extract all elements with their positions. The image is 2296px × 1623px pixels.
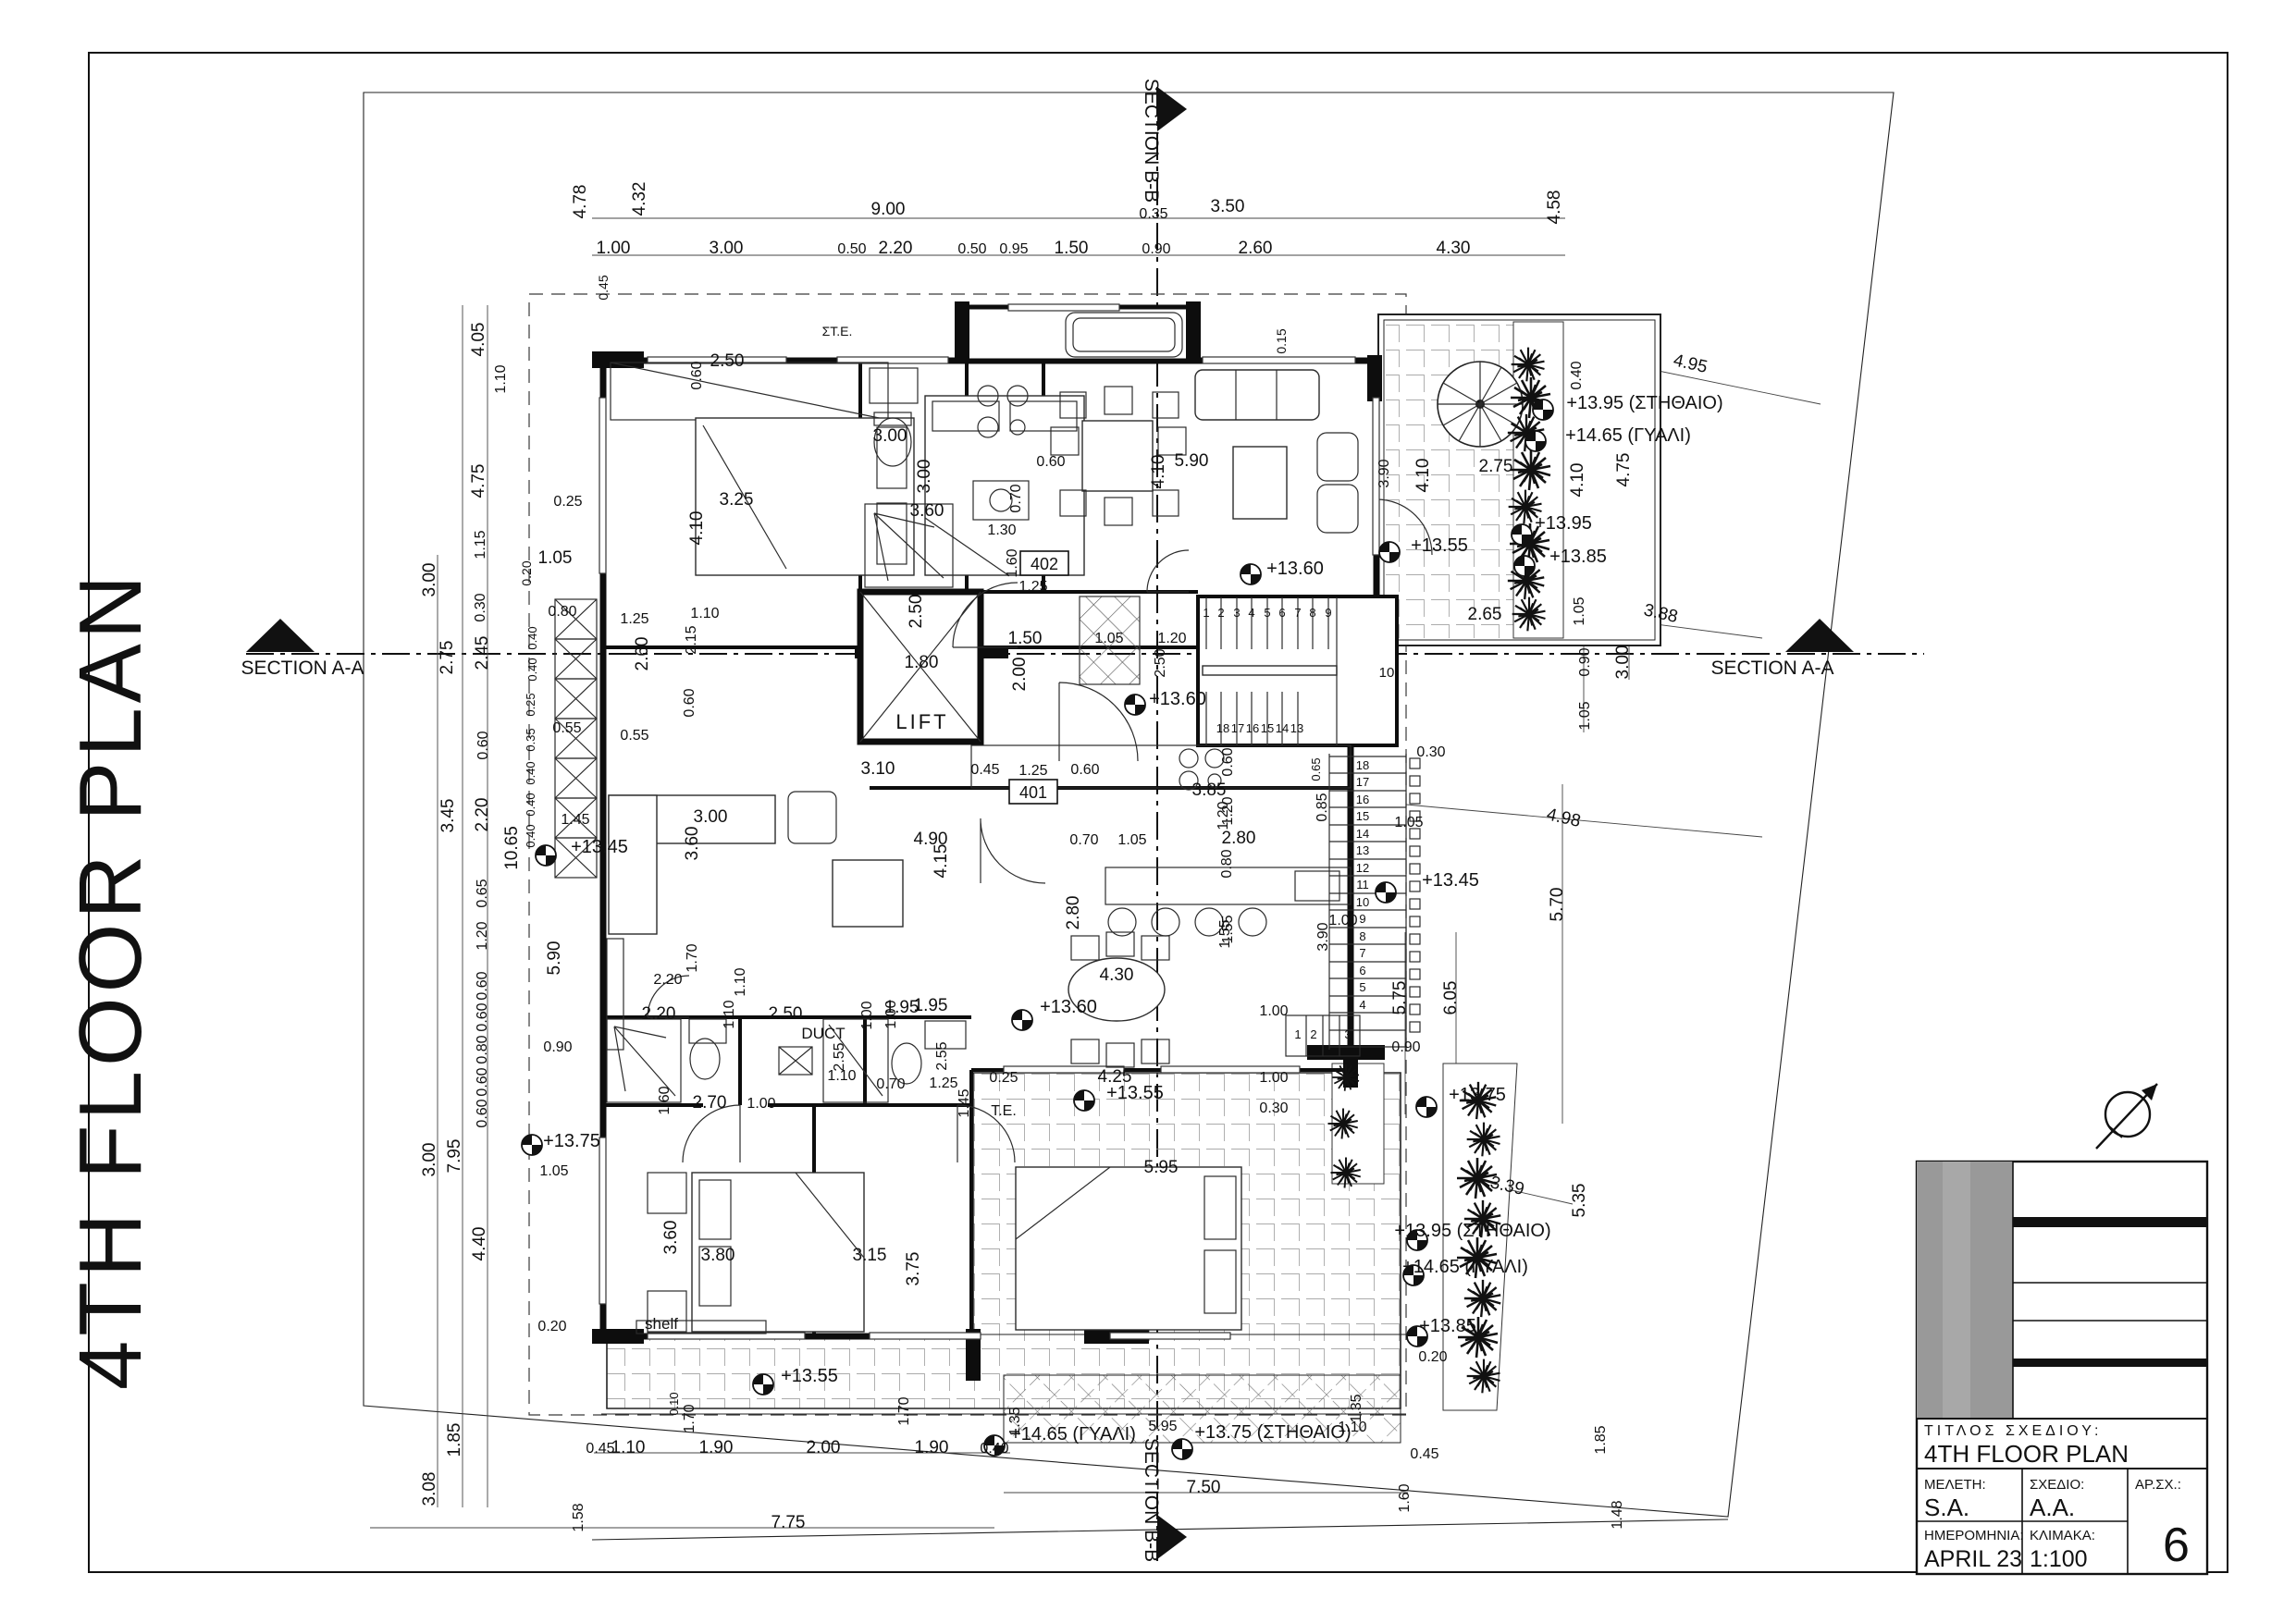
dim-label: 1.00 (747, 1096, 775, 1112)
dim-label: +14.65 (ΓΥΑΛΙ) (1402, 1257, 1528, 1277)
dim-label: 0.95 (999, 241, 1028, 257)
dim-label: 0.90 (1391, 1039, 1420, 1055)
text-label: SECTION B-B (1141, 79, 1162, 203)
date-value: APRIL 23 (1924, 1546, 2022, 1572)
stair-number: 14 (1276, 721, 1289, 735)
stair-number: 1 (1203, 606, 1209, 620)
title-block: ΤΙΤΛΟΣ ΣΧΕΔΙΟΥ: 4TH FLOOR PLAN ΜΕΛΕΤΗ: S… (1917, 1162, 2207, 1574)
dim-label: 0.45 (596, 275, 611, 300)
level-marker-icon (1533, 400, 1553, 420)
dim-label: 2.50 (710, 351, 745, 371)
room-tag: 402 (1031, 555, 1058, 573)
dim-label: 1.20 (1216, 801, 1231, 830)
dim-label: 0.40 (524, 824, 537, 847)
dim-label: 1.60 (657, 1086, 673, 1114)
dim-label: +14.65 (ΓΥΑΛΙ) (1565, 425, 1691, 446)
dim-label: 5.90 (1175, 451, 1209, 471)
dim-label: 3.00 (420, 1143, 439, 1177)
dim-label: 1.80 (905, 653, 939, 672)
stair-number: 7 (1359, 946, 1365, 960)
stair-number: 4 (1359, 998, 1365, 1012)
dim-label: +13.55 (1411, 535, 1468, 556)
dim-label: 3.60 (683, 827, 702, 861)
dim-label: 4.40 (470, 1227, 489, 1261)
dim-label: 4.78 (571, 185, 590, 219)
dim-label: 10 (1379, 665, 1395, 681)
dim-label: 1.90 (699, 1438, 734, 1457)
level-marker-icon (1376, 882, 1396, 903)
stair-number: 14 (1356, 827, 1369, 841)
drawing-value: A.A. (2030, 1494, 2075, 1521)
dim-label: 10.65 (502, 826, 522, 870)
level-marker-icon (522, 1135, 542, 1155)
stair-number: 7 (1294, 606, 1301, 620)
level-marker-icon (1241, 564, 1261, 584)
floor-plan-svg: 4.784.329.000.353.501.003.000.502.200.50… (0, 0, 2296, 1623)
dim-label: +13.95 (ΣΤΗΘΑΙΟ) (1566, 393, 1722, 413)
dim-label: 1.10 (690, 606, 719, 621)
dim-label: +13.95 (ΣΤΗΘΑΙΟ) (1394, 1221, 1550, 1241)
stair-number: 16 (1246, 721, 1259, 735)
stair-number: 18 (1356, 758, 1369, 772)
dim-label: 1.70 (682, 1404, 697, 1432)
stair-number: 15 (1356, 809, 1369, 823)
dim-label: 0.70 (1008, 484, 1024, 512)
dim-label: 2.65 (1468, 605, 1502, 624)
drawing-label: ΣΧΕΔΙΟ: (2030, 1477, 2084, 1493)
doc-title: 4TH FLOOR PLAN (1924, 1440, 2129, 1468)
stair-number: 13 (1290, 721, 1303, 735)
dim-label: +13.75 (543, 1131, 600, 1151)
dim-label: 2.80 (1222, 829, 1256, 848)
dim-label: 2.75 (1479, 457, 1513, 476)
dim-label: 1.15 (473, 530, 488, 559)
dim-label: 1.60 (1397, 1483, 1413, 1512)
dim-label: 0.60 (475, 1067, 490, 1096)
dim-label: 2.50 (1153, 648, 1168, 677)
dim-label: +13.85 (1549, 547, 1607, 567)
dim-label: 1.20 (1157, 631, 1186, 646)
level-marker-icon (1074, 1090, 1094, 1111)
dim-label: 0.40 (524, 761, 537, 784)
dim-label: 0.80 (548, 604, 576, 620)
dim-label: 4.10 (687, 511, 707, 546)
dim-label: 4.10 (1149, 455, 1168, 489)
dim-label: 0.60 (475, 971, 490, 1000)
level-marker-icon (1512, 524, 1532, 545)
dim-label: +13.45 (571, 837, 628, 857)
dim-label: 5.95 (1148, 1419, 1177, 1434)
dim-label: 0.15 (1274, 328, 1289, 353)
dim-label: 3.00 (694, 807, 728, 827)
dim-label: 1.85 (1593, 1425, 1609, 1454)
dim-label: +13.45 (1422, 870, 1479, 891)
dim-label: 3.00 (915, 460, 934, 494)
dim-label: 2.60 (1239, 239, 1273, 258)
stair-number: 17 (1231, 721, 1244, 735)
study-label: ΜΕΛΕΤΗ: (1924, 1477, 1986, 1493)
dim-label: 0.40 (524, 793, 537, 816)
dim-label: 4.75 (1614, 453, 1634, 487)
dim-label: 4.30 (1437, 239, 1471, 258)
dim-label: 1.85 (445, 1423, 464, 1457)
stair-number: 5 (1264, 606, 1270, 620)
dim-label: 3.00 (873, 426, 907, 446)
dim-label: 4.05 (469, 323, 488, 357)
dim-label: 1.25 (1018, 763, 1047, 779)
date-label: ΗΜΕΡΟΜΗΝΙΑ: (1924, 1528, 2024, 1543)
text-label: Τ.Ε. (991, 1103, 1017, 1119)
stair-number: 18 (1216, 721, 1229, 735)
dim-label: 0.10 (667, 1392, 681, 1415)
dim-label: +13.95 (1535, 513, 1592, 534)
stair-number: 11 (1356, 878, 1369, 891)
dim-label: 0.25 (989, 1070, 1018, 1086)
dim-label: 0.70 (876, 1076, 905, 1092)
stair-number: 2 (1217, 606, 1224, 620)
dim-label: 1.50 (1055, 239, 1089, 258)
dim-label: 7.50 (1187, 1478, 1221, 1497)
dim-label: 0.80 (475, 1035, 490, 1064)
dim-label: 0.60 (1070, 762, 1099, 778)
dim-label: 1.05 (1572, 596, 1587, 625)
dim-label: 0.40 (525, 626, 539, 649)
stair-number: 12 (1356, 861, 1369, 875)
dim-label: 0.30 (1259, 1100, 1288, 1116)
dim-label: 0.90 (1142, 241, 1170, 257)
dim-label: 1.48 (1610, 1500, 1625, 1529)
dim-label: +13.55 (1106, 1083, 1164, 1103)
dim-label: 0.45 (970, 762, 999, 778)
stair-number: 9 (1359, 912, 1365, 926)
dim-label: 1.10 (827, 1068, 856, 1084)
dim-label: 3.00 (1613, 646, 1633, 680)
dim-label: 1.10 (722, 1000, 737, 1028)
dim-label: 1.20 (475, 921, 490, 950)
dim-label: 0.55 (620, 728, 648, 744)
sheet-number: 6 (2163, 1518, 2190, 1572)
dim-label: 0.30 (1416, 744, 1445, 760)
dim-label: 1.05 (538, 548, 573, 568)
dim-label: 1.00 (1259, 1070, 1288, 1086)
dim-label: 7.95 (445, 1139, 464, 1174)
stair-number: 8 (1359, 929, 1365, 943)
text-label: LIFT (895, 710, 948, 733)
text-label: SECTION A-A (1710, 658, 1833, 679)
dim-label: 4.30 (1100, 965, 1134, 985)
dim-label: 1.05 (1394, 815, 1423, 830)
dim-label: 4.15 (932, 844, 951, 879)
stair-number: 1 (1294, 1027, 1301, 1041)
dim-label: 1.90 (915, 1438, 949, 1457)
dim-label: 0.80 (1219, 849, 1235, 878)
dim-label: 0.60 (1036, 454, 1065, 470)
dim-label: 1.70 (685, 943, 700, 972)
dim-label: 4.10 (1568, 463, 1587, 498)
spiral-stair (1438, 362, 1523, 447)
scale-value: 1:100 (2030, 1546, 2088, 1572)
dim-label: 3.50 (1211, 197, 1245, 216)
dim-label: 3.08 (420, 1472, 439, 1506)
dim-label: 1.58 (571, 1503, 586, 1531)
level-marker-icon (1525, 431, 1546, 451)
stair-number: 8 (1309, 606, 1315, 620)
stair-number: 3 (1233, 606, 1240, 620)
level-marker-icon (753, 1374, 773, 1395)
stair-number: 15 (1261, 721, 1274, 735)
dim-label: 1.55 (1217, 919, 1233, 948)
dim-label: 0.20 (537, 1319, 566, 1334)
dim-label: +13.85 (1419, 1316, 1476, 1336)
dim-label: +13.60 (1040, 997, 1097, 1017)
dim-label: +13.55 (781, 1366, 838, 1386)
dim-label: 3.10 (861, 759, 895, 779)
dim-label: 0.50 (957, 241, 986, 257)
dim-label: 2.75 (438, 641, 457, 675)
dim-label: 2.20 (642, 1004, 676, 1024)
side-title: 4TH FLOOR PLAN (61, 571, 160, 1390)
dim-label: 1.05 (539, 1163, 568, 1179)
dim-label: 2.55 (934, 1041, 950, 1070)
dim-label: 2.50 (907, 595, 926, 629)
dim-label: 0.65 (475, 879, 490, 907)
dim-label: 1.05 (1094, 631, 1123, 646)
dim-label: 2.20 (879, 239, 913, 258)
room-tag: 401 (1019, 783, 1047, 802)
level-marker-icon (1514, 556, 1535, 576)
sheet-number-label: ΑΡ.ΣΧ.: (2135, 1477, 2181, 1493)
dim-label: 9.00 (871, 200, 906, 219)
dim-label: 2.80 (1064, 896, 1083, 930)
dim-label: 1.30 (987, 523, 1016, 538)
stair-number: 17 (1356, 775, 1369, 789)
text-label: SECTION A-A (241, 658, 364, 679)
dim-label: 0.25 (553, 494, 582, 510)
stair-number: 10 (1356, 895, 1369, 909)
dim-label: 2.15 (684, 625, 699, 654)
dim-label: 3.75 (904, 1252, 923, 1286)
level-marker-icon (1379, 542, 1400, 562)
dim-label: 1.10 (493, 364, 509, 393)
dim-label: 5.75 (1390, 981, 1410, 1015)
dim-label: 2.00 (807, 1438, 841, 1457)
text-label: DUCT (801, 1025, 845, 1042)
dim-label: 1.10 (733, 967, 748, 996)
dim-label: 1.25 (620, 611, 648, 627)
dim-label: 3.15 (853, 1246, 887, 1265)
dim-label: 2.20 (473, 798, 492, 832)
dim-label: 1.05 (1577, 701, 1593, 730)
dim-label: 3.00 (420, 563, 439, 597)
dim-label: 3.60 (661, 1221, 681, 1255)
dim-label: 0.30 (473, 593, 488, 621)
dim-label: 1.60 (1005, 548, 1020, 577)
dim-label: 3.00 (710, 239, 744, 258)
stair-number: 5 (1359, 980, 1365, 994)
dim-label: 4.75 (469, 464, 488, 498)
dim-label: 3.25 (720, 490, 754, 510)
text-label: ΣΤ.Ε. (822, 324, 853, 338)
text-label: shelf (645, 1315, 678, 1333)
dim-label: 0.60 (475, 1099, 490, 1127)
dim-label: 1.00 (1259, 1003, 1288, 1019)
dim-label: 4.58 (1545, 191, 1564, 225)
dim-label: +14.65 (ΓΥΑΛΙ) (1010, 1424, 1136, 1445)
dim-label: 0.60 (1220, 747, 1236, 776)
dim-label: 0.60 (475, 731, 491, 759)
dim-label: 4.32 (630, 182, 649, 216)
dim-label: 5.35 (1570, 1184, 1589, 1218)
dim-label: 2.55 (832, 1042, 847, 1071)
dim-label: 0.70 (1069, 832, 1098, 848)
level-marker-icon (1125, 695, 1145, 715)
stair-number: 3 (1344, 1027, 1351, 1041)
dim-label: 0.40 (1569, 361, 1585, 389)
dim-label: 0.65 (1309, 757, 1323, 781)
dim-label: 3.60 (910, 501, 944, 521)
dim-label: 0.50 (837, 241, 866, 257)
dim-label: +13.75 (ΣΤΗΘΑΙΟ) (1194, 1422, 1351, 1443)
dim-label: +13.60 (1266, 559, 1324, 579)
dim-label: 0.35 (1139, 206, 1167, 222)
stair-number: 6 (1278, 606, 1285, 620)
dim-label: 1.25 (929, 1076, 957, 1091)
doc-title-label: ΤΙΤΛΟΣ ΣΧΕΔΙΟΥ: (1924, 1423, 2102, 1439)
dim-label: 0.60 (682, 688, 697, 717)
dim-label: 1.10 (611, 1438, 646, 1457)
dim-label: 0.85 (1315, 793, 1330, 821)
stair-number: 16 (1356, 793, 1369, 806)
dim-label: 3.80 (701, 1246, 735, 1265)
dim-label: 0.40 (980, 1441, 1008, 1457)
level-marker-icon (1172, 1439, 1192, 1459)
dim-label: 0.20 (519, 560, 534, 585)
dim-label: 2.50 (769, 1004, 803, 1024)
dim-label: 0.90 (1577, 647, 1593, 676)
dim-label: 1.95 (885, 998, 920, 1017)
dim-label: 0.60 (689, 361, 705, 389)
dim-label: 7.75 (772, 1513, 806, 1532)
dim-label: 0.20 (1418, 1349, 1447, 1365)
dim-label: 5.95 (1144, 1158, 1179, 1177)
dim-label: 5.90 (545, 941, 564, 976)
dim-label: +13.60 (1149, 689, 1206, 709)
dim-label: 1.05 (1117, 832, 1146, 848)
dim-label: 3.45 (438, 799, 458, 833)
dim-label: 2.45 (473, 636, 492, 670)
drawing-sheet: 4.784.329.000.353.501.003.000.502.200.50… (0, 0, 2296, 1623)
dim-label: 4.10 (1413, 459, 1433, 493)
dim-label: 1.35 (1349, 1394, 1364, 1422)
dim-label: 2.70 (693, 1093, 727, 1113)
dim-label: 2.60 (633, 637, 652, 671)
dim-label: 1.00 (597, 239, 631, 258)
dim-label: 2.00 (1010, 658, 1030, 692)
dim-label: 1.70 (896, 1396, 912, 1425)
level-marker-icon (536, 845, 556, 866)
text-label: SECTION B-B (1141, 1438, 1162, 1562)
dim-label: 1.25 (1018, 579, 1047, 595)
dim-label: +13.75 (1449, 1085, 1506, 1105)
dim-label: 0.60 (475, 1002, 490, 1031)
dim-label: 0.40 (525, 658, 539, 681)
dim-label: 1.00 (859, 1001, 875, 1029)
dim-label: 1.45 (561, 812, 589, 828)
dim-label: 1.45 (957, 1088, 972, 1117)
dim-label: 5.70 (1548, 888, 1567, 922)
stair-number: 13 (1356, 843, 1369, 857)
level-marker-icon (1416, 1097, 1437, 1117)
dim-label: 0.45 (1410, 1446, 1438, 1462)
dim-label: 0.90 (543, 1039, 572, 1055)
dim-label: 2.20 (653, 972, 682, 988)
dim-label: 1.00 (1328, 913, 1357, 928)
dim-label: 1.10 (1338, 1420, 1366, 1435)
dim-label: 3.90 (1376, 459, 1392, 487)
dim-label: 6.05 (1441, 981, 1461, 1015)
study-value: S.A. (1924, 1494, 1969, 1521)
dim-label: 1.50 (1008, 629, 1043, 648)
scale-label: ΚΛΙΜΑΚΑ: (2030, 1528, 2095, 1543)
stair-number: 6 (1359, 964, 1365, 977)
stair-number: 4 (1248, 606, 1254, 620)
stair-number: 9 (1325, 606, 1331, 620)
dim-label: 0.25 (524, 693, 537, 716)
level-marker-icon (1012, 1010, 1032, 1030)
stair-number: 2 (1310, 1027, 1316, 1041)
dim-label: 0.35 (524, 728, 537, 751)
dim-label: 0.55 (552, 720, 581, 736)
